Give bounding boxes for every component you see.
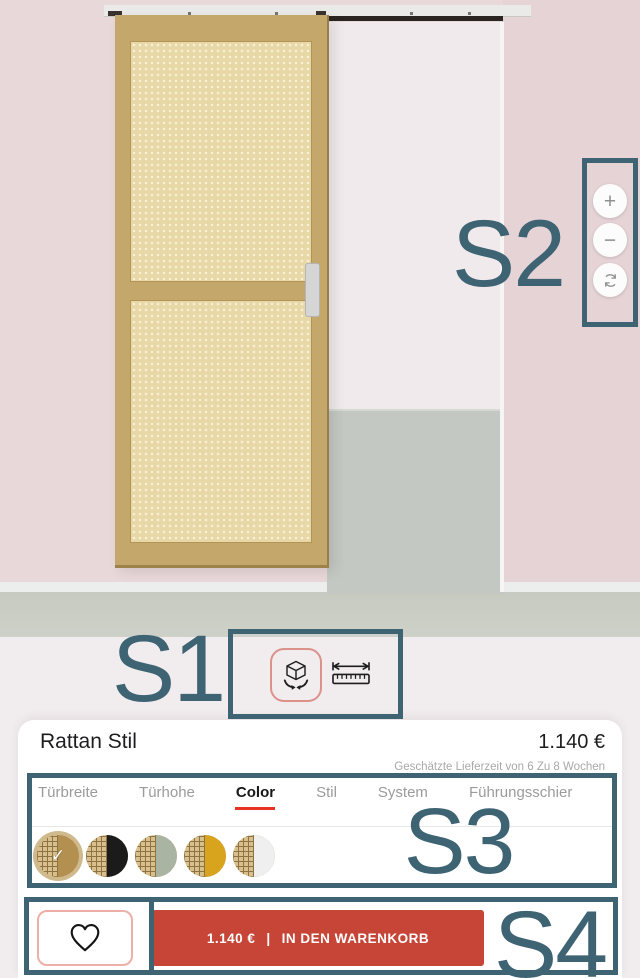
plus-icon: +	[604, 191, 616, 212]
tab-fuehrungsschiene[interactable]: Führungsschier	[469, 784, 572, 813]
swatch-color-half	[205, 835, 226, 877]
config-tabs: Türbreite Türhohe Color Stil System Führ…	[38, 784, 622, 813]
doorway-opening	[327, 22, 503, 409]
rotate-cube-icon	[278, 657, 314, 693]
cart-price: 1.140 €	[207, 931, 256, 946]
right-wall	[503, 0, 640, 592]
room-floor	[0, 592, 640, 637]
doorway-floor	[327, 409, 503, 594]
view-mode-measure-button[interactable]	[331, 659, 371, 687]
rail-bracket	[410, 12, 413, 15]
swatch-color-half	[156, 835, 177, 877]
door-configurator-app: + −	[0, 0, 640, 978]
product-bottom-sheet: Rattan Stil 1.140 € Geschätzte Lieferzei…	[18, 720, 622, 978]
ruler-icon	[331, 660, 371, 687]
swatch-color-half	[107, 835, 128, 877]
cart-separator: |	[266, 931, 270, 946]
swatch-rattan-sage[interactable]: ✓	[135, 835, 177, 877]
room-3d-viewport[interactable]: + −	[0, 0, 640, 724]
product-price: 1.140 €	[538, 731, 605, 754]
product-header: Rattan Stil 1.140 €	[40, 730, 605, 754]
swatch-color-half	[254, 835, 275, 877]
product-title: Rattan Stil	[40, 730, 137, 754]
minus-icon: −	[604, 230, 616, 251]
view-mode-3d-button[interactable]	[270, 648, 322, 702]
tab-stil[interactable]: Stil	[316, 784, 337, 813]
cart-label: IN DEN WARENKORB	[282, 931, 430, 946]
color-swatch-row: ✓ ✓ ✓ ✓ ✓	[37, 835, 275, 877]
swatch-rattan-black[interactable]: ✓	[86, 835, 128, 877]
sliding-door-track	[327, 16, 503, 21]
reset-view-button[interactable]	[593, 263, 627, 297]
swatch-rattan-natural[interactable]: ✓	[37, 835, 79, 877]
rail-bracket	[468, 12, 471, 15]
tab-color[interactable]: Color	[236, 784, 275, 813]
tab-system[interactable]: System	[378, 784, 428, 813]
zoom-in-button[interactable]: +	[593, 184, 627, 218]
add-to-cart-button[interactable]: 1.140 € | IN DEN WARENKORB	[152, 910, 484, 966]
doorway-edge-highlight	[500, 22, 504, 592]
door-handle	[305, 263, 320, 317]
tabs-divider	[28, 826, 612, 827]
delivery-estimate: Geschätzte Lieferzeit von 6 Zu 8 Wochen	[394, 761, 605, 773]
tab-tuerhohe[interactable]: Türhohe	[139, 784, 195, 813]
baseboard	[0, 582, 640, 592]
tab-tuerbreite[interactable]: Türbreite	[38, 784, 98, 813]
heart-icon	[68, 922, 102, 954]
sliding-door-model[interactable]	[115, 15, 329, 568]
door-rattan-panel-lower	[130, 300, 312, 543]
sync-icon	[601, 271, 620, 290]
swatch-rattan-mustard[interactable]: ✓	[184, 835, 226, 877]
favorite-button[interactable]	[37, 910, 133, 966]
check-icon: ✓	[37, 835, 79, 877]
zoom-out-button[interactable]: −	[593, 223, 627, 257]
swatch-rattan-white[interactable]: ✓	[233, 835, 275, 877]
door-rattan-panel-upper	[130, 41, 312, 282]
